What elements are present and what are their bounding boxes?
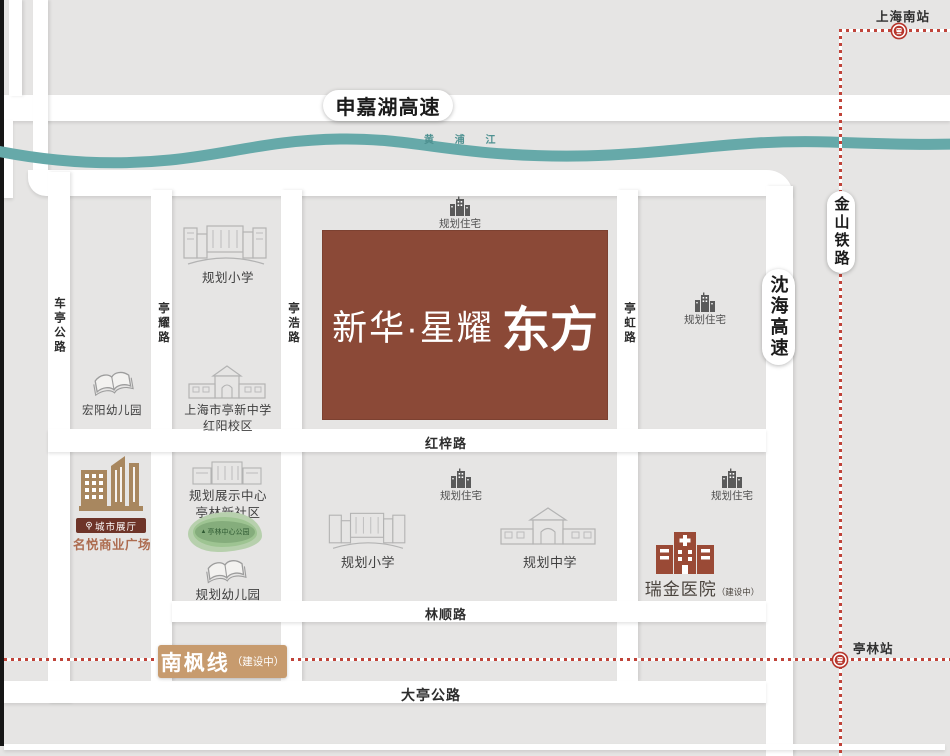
city-hall-badge: 城市展厅 xyxy=(76,518,146,533)
shenjiahu-expressway-name: 申嘉湖高速 xyxy=(336,91,441,120)
project-name-box: 新华·星耀 东方 xyxy=(322,230,608,420)
planned-residence-icon xyxy=(449,196,471,216)
label-pill-jinshan-railway: 金山铁路 xyxy=(827,191,855,273)
road-label-cheting: 车亭公路 xyxy=(51,297,67,355)
road-shenjiahu-expressway xyxy=(0,95,950,121)
location-map: 黄 浦 江 上海南站 亭林站 申嘉湖高速 金山铁路 沈海高速 车亭公路 亭耀路 … xyxy=(0,0,950,756)
ruijin-hospital-status: （建设中） xyxy=(717,587,760,597)
road-linshun xyxy=(172,601,766,622)
planned-residence-label: 规划住宅 xyxy=(665,313,745,327)
planned-primary-school-sketch xyxy=(180,218,272,268)
tree-icon: ▲ xyxy=(201,529,207,535)
project-name-suffix: 东方 xyxy=(502,290,598,360)
road-label-tinghong: 亭虹路 xyxy=(621,302,637,346)
exhibition-center-sketch xyxy=(191,456,265,488)
planned-residence-label: 规划住宅 xyxy=(692,489,772,503)
tingxin-middle-school-line2: 红阳校区 xyxy=(203,419,253,433)
planned-primary-school-label: 规划小学 xyxy=(174,270,282,287)
nanfeng-line-badge: 南枫线 （建设中） xyxy=(158,645,287,678)
label-pill-shenhai-expressway: 沈海高速 xyxy=(762,269,795,365)
ruijin-hospital-name: 瑞金医院 xyxy=(645,580,717,599)
planned-residence-label: 规划住宅 xyxy=(421,489,501,503)
tinglin-central-park: ▲ 亭林中心公园 xyxy=(188,512,262,552)
mall-label: 名悦商业广场 xyxy=(70,534,154,553)
exhibition-center-line1: 规划展示中心 xyxy=(189,489,267,503)
road-topleft-branch-a xyxy=(9,0,22,96)
planned-residence-icon xyxy=(450,468,472,488)
ruijin-hospital-label: 瑞金医院（建设中） xyxy=(636,575,768,600)
planned-middle-school-sketch xyxy=(496,504,600,550)
park-label: 亭林中心公园 xyxy=(207,527,249,537)
planned-residence-icon xyxy=(694,292,716,312)
hongyang-kindergarten-book-icon xyxy=(88,364,139,404)
tingxin-middle-school-label: 上海市亭新中学 红阳校区 xyxy=(168,402,288,434)
shenhai-expressway-name: 沈海高速 xyxy=(766,275,792,359)
planned-primary-school-sketch xyxy=(322,506,414,552)
station-label-tinglin: 亭林站 xyxy=(853,638,894,657)
road-bottom xyxy=(4,744,945,750)
road-hongzi xyxy=(48,429,766,452)
tingxin-middle-school-sketch xyxy=(186,362,268,402)
city-hall-label: 城市展厅 xyxy=(95,519,137,533)
road-label-dating: 大亭公路 xyxy=(401,685,461,705)
road-main-top xyxy=(28,170,793,196)
planned-residence-label: 规划住宅 xyxy=(420,217,500,231)
project-name-prefix: 新华·星耀 xyxy=(332,300,494,351)
nanfeng-line-name: 南枫线 xyxy=(161,647,230,677)
map-edge-bar xyxy=(0,0,4,746)
road-label-tinghao: 亭浩路 xyxy=(285,302,301,346)
station-label-shanghai-south: 上海南站 xyxy=(876,6,930,25)
planned-kindergarten-book-icon xyxy=(201,553,251,591)
mall-building-icon xyxy=(79,454,143,516)
location-pin-icon xyxy=(85,521,93,531)
road-label-hongzi: 红梓路 xyxy=(425,433,467,452)
road-label-linshun: 林顺路 xyxy=(425,604,467,623)
nanfeng-metro-line xyxy=(4,658,950,661)
jinshan-railway-line-vertical xyxy=(839,29,842,756)
label-pill-shenjiahu-expressway: 申嘉湖高速 xyxy=(323,90,453,121)
road-dating xyxy=(4,681,766,703)
road-label-tingyao: 亭耀路 xyxy=(155,302,171,346)
railway-station-icon-tinglin xyxy=(831,651,849,669)
tingxin-middle-school-line1: 上海市亭新中学 xyxy=(184,403,272,417)
jinshan-railway-name: 金山铁路 xyxy=(831,196,852,268)
planned-primary-school-label: 规划小学 xyxy=(318,554,418,572)
nanfeng-line-status: （建设中） xyxy=(232,654,285,669)
planned-kindergarten-label: 规划幼儿园 xyxy=(172,587,284,604)
river-label: 黄 浦 江 xyxy=(424,131,505,146)
planned-middle-school-label: 规划中学 xyxy=(500,554,600,572)
park-core: ▲ 亭林中心公园 xyxy=(195,521,255,543)
ruijin-hospital-icon xyxy=(654,530,716,574)
planned-residence-icon xyxy=(721,468,743,488)
hongyang-kindergarten-label: 宏阳幼儿园 xyxy=(72,404,152,420)
